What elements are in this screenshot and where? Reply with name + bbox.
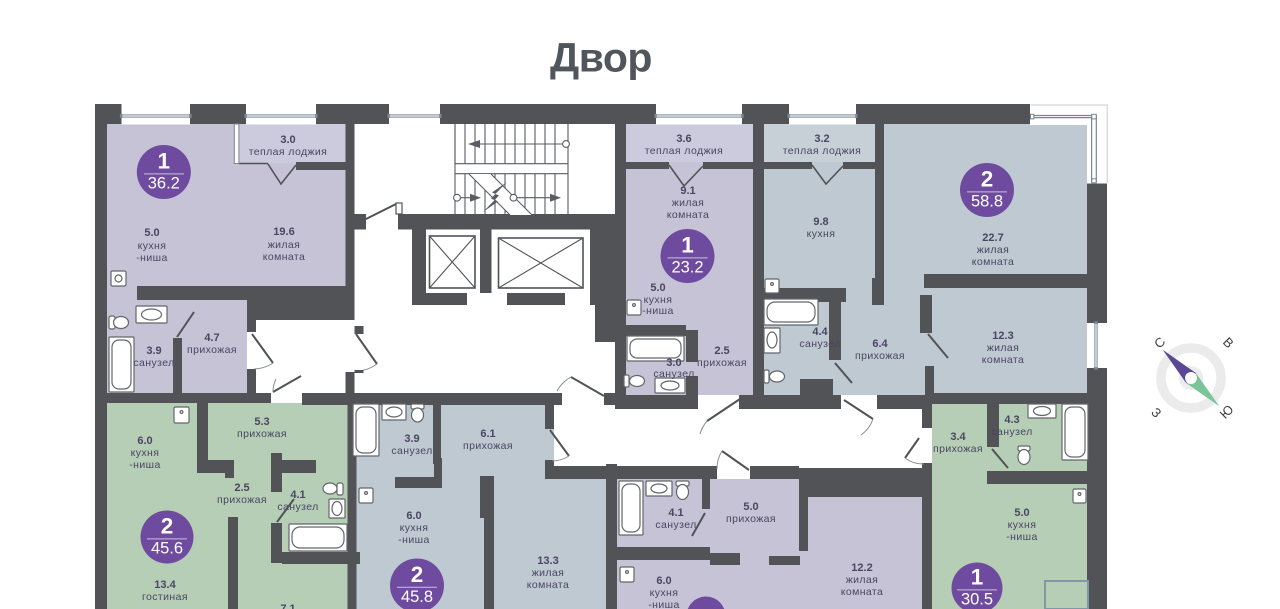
svg-text:12.3: 12.3 <box>992 330 1013 342</box>
svg-text:2.5: 2.5 <box>714 345 729 357</box>
svg-text:-ниша: -ниша <box>398 534 429 546</box>
svg-text:5.3: 5.3 <box>254 416 269 428</box>
svg-text:кухня: кухня <box>131 447 160 459</box>
svg-text:комната: комната <box>841 586 884 598</box>
svg-text:3.9: 3.9 <box>146 345 161 357</box>
svg-text:жилая: жилая <box>532 567 565 579</box>
svg-text:3.4: 3.4 <box>950 431 966 443</box>
svg-text:9.8: 9.8 <box>813 216 828 228</box>
svg-text:прихожая: прихожая <box>237 428 287 440</box>
svg-text:кухня: кухня <box>400 522 429 534</box>
svg-text:кухня: кухня <box>650 587 679 599</box>
svg-text:прихожая: прихожая <box>855 350 905 362</box>
svg-text:прихожая: прихожая <box>726 513 776 525</box>
svg-text:3.9: 3.9 <box>404 433 419 445</box>
svg-text:19.6: 19.6 <box>273 226 294 238</box>
svg-text:23.2: 23.2 <box>671 259 703 277</box>
svg-text:-ниша: -ниша <box>648 599 679 609</box>
svg-text:45.6: 45.6 <box>151 540 183 558</box>
svg-text:13.3: 13.3 <box>537 555 558 567</box>
svg-text:6.4: 6.4 <box>872 338 888 350</box>
svg-text:прихожая: прихожая <box>933 443 983 455</box>
svg-text:санузел: санузел <box>277 501 318 513</box>
svg-text:кухня: кухня <box>807 228 836 240</box>
svg-text:36.2: 36.2 <box>148 175 180 193</box>
svg-text:прихожая: прихожая <box>463 440 513 452</box>
svg-text:жилая: жилая <box>977 244 1010 256</box>
svg-text:-ниша: -ниша <box>136 252 167 264</box>
svg-text:4.1: 4.1 <box>668 507 683 519</box>
svg-text:2: 2 <box>981 167 994 192</box>
svg-text:теплая лоджия: теплая лоджия <box>645 145 724 157</box>
svg-text:4.3: 4.3 <box>1004 414 1019 426</box>
svg-text:4.4: 4.4 <box>812 326 828 338</box>
svg-text:кухня: кухня <box>1008 519 1037 531</box>
svg-text:30.5: 30.5 <box>961 591 993 609</box>
svg-text:2: 2 <box>161 514 174 539</box>
svg-text:гостиная: гостиная <box>142 591 188 603</box>
svg-text:4.7: 4.7 <box>204 332 219 344</box>
svg-text:теплая лоджия: теплая лоджия <box>249 146 328 158</box>
svg-text:5.0: 5.0 <box>144 227 159 239</box>
svg-text:жилая: жилая <box>268 239 301 251</box>
svg-text:2.5: 2.5 <box>234 482 249 494</box>
svg-text:Двор: Двор <box>550 35 652 81</box>
svg-text:комната: комната <box>263 251 306 263</box>
svg-text:1: 1 <box>971 565 984 590</box>
svg-text:-ниша: -ниша <box>1006 531 1037 543</box>
svg-text:прихожая: прихожая <box>217 494 267 506</box>
svg-text:5.0: 5.0 <box>650 282 665 294</box>
svg-text:кухня: кухня <box>138 240 167 252</box>
svg-text:2: 2 <box>411 562 424 587</box>
svg-text:6.0: 6.0 <box>406 510 421 522</box>
svg-text:13.4: 13.4 <box>154 579 176 591</box>
svg-text:6.0: 6.0 <box>137 435 152 447</box>
svg-text:жилая: жилая <box>846 574 879 586</box>
svg-text:комната: комната <box>982 354 1025 366</box>
svg-text:жилая: жилая <box>987 342 1020 354</box>
svg-text:5.0: 5.0 <box>1014 507 1029 519</box>
svg-text:санузел: санузел <box>653 368 694 380</box>
svg-text:комната: комната <box>667 209 710 221</box>
svg-text:жилая: жилая <box>672 197 705 209</box>
svg-text:6.1: 6.1 <box>480 428 495 440</box>
svg-text:3.6: 3.6 <box>676 133 691 145</box>
svg-text:4.1: 4.1 <box>290 489 305 501</box>
svg-text:58.8: 58.8 <box>971 193 1003 211</box>
svg-text:45.8: 45.8 <box>401 588 433 606</box>
svg-text:1: 1 <box>681 233 694 258</box>
svg-text:комната: комната <box>527 579 570 591</box>
svg-text:теплая лоджия: теплая лоджия <box>783 145 862 157</box>
svg-text:9.1: 9.1 <box>680 185 695 197</box>
svg-text:санузел: санузел <box>391 445 432 457</box>
svg-text:3.2: 3.2 <box>814 133 829 145</box>
svg-text:7.1: 7.1 <box>280 603 295 609</box>
svg-text:санузел: санузел <box>799 338 840 350</box>
svg-text:12.2: 12.2 <box>851 562 872 574</box>
svg-text:санузел: санузел <box>133 357 174 369</box>
svg-text:-ниша: -ниша <box>129 459 160 471</box>
svg-text:комната: комната <box>972 256 1015 268</box>
svg-text:22.7: 22.7 <box>982 232 1003 244</box>
svg-text:-ниша: -ниша <box>642 305 673 317</box>
svg-text:1: 1 <box>158 149 171 174</box>
svg-text:5.0: 5.0 <box>743 501 758 513</box>
svg-text:санузел: санузел <box>991 426 1032 438</box>
svg-text:санузел: санузел <box>655 519 696 531</box>
svg-text:прихожая: прихожая <box>697 357 747 369</box>
svg-text:прихожая: прихожая <box>187 344 237 356</box>
svg-text:3.0: 3.0 <box>280 134 295 146</box>
svg-text:6.0: 6.0 <box>656 575 671 587</box>
